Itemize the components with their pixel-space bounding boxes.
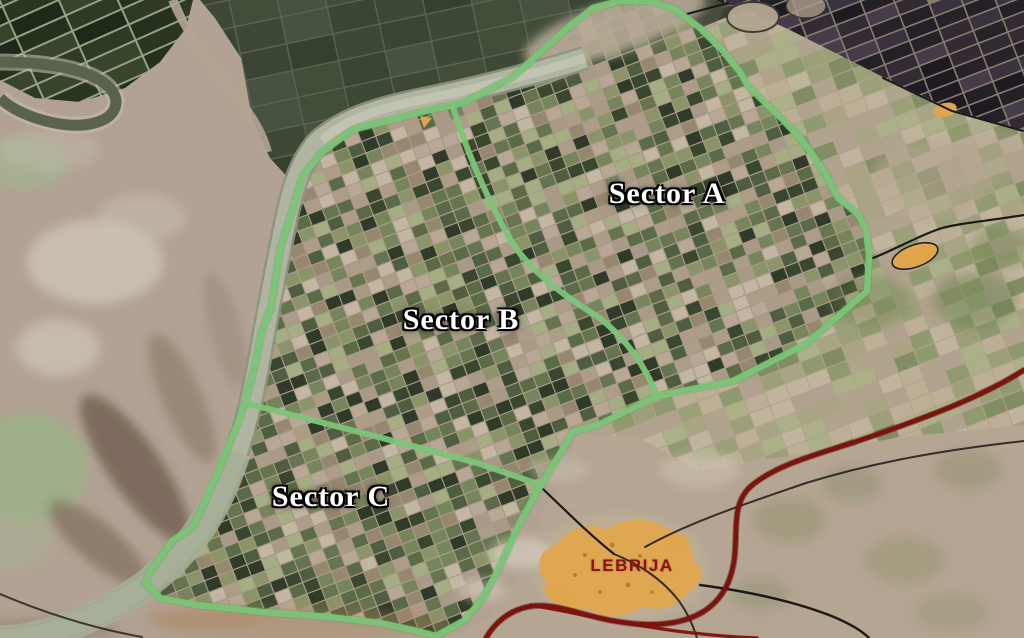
satellite-image (0, 0, 1024, 638)
satellite-map: Sector A Sector B Sector C LEBRIJA (0, 0, 1024, 638)
